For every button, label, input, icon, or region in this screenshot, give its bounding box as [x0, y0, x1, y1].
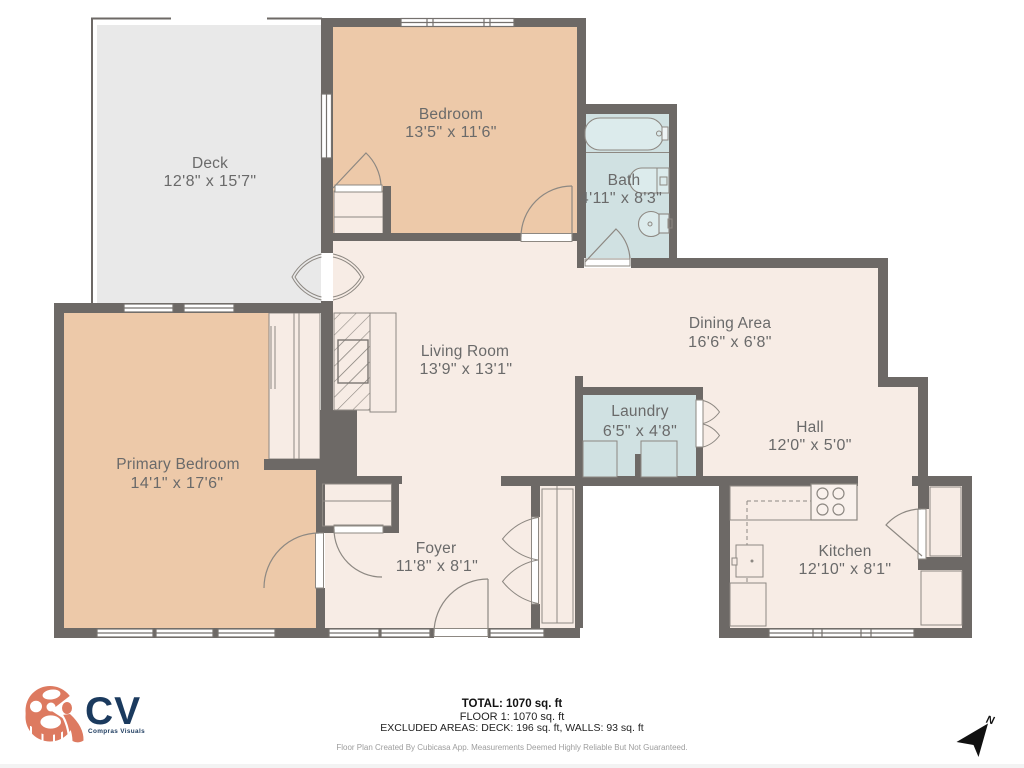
- svg-text:Living Room: Living Room: [421, 343, 509, 360]
- svg-text:Deck: Deck: [192, 155, 228, 172]
- svg-text:CV: CV: [85, 690, 141, 733]
- svg-text:Foyer: Foyer: [416, 540, 457, 557]
- svg-text:Dining Area: Dining Area: [689, 315, 772, 332]
- svg-text:12'10" x 8'1": 12'10" x 8'1": [799, 561, 892, 578]
- svg-text:4'11" x 8'3": 4'11" x 8'3": [580, 190, 662, 207]
- svg-text:Laundry: Laundry: [611, 403, 668, 420]
- svg-text:Floor Plan Created By Cubicasa: Floor Plan Created By Cubicasa App. Meas…: [336, 743, 687, 752]
- svg-text:11'8" x 8'1": 11'8" x 8'1": [396, 558, 478, 575]
- svg-text:Hall: Hall: [796, 419, 824, 436]
- svg-text:TOTAL: 1070 sq. ft: TOTAL: 1070 sq. ft: [462, 698, 563, 710]
- svg-text:Primary Bedroom: Primary Bedroom: [116, 456, 240, 473]
- svg-text:13'9" x 13'1": 13'9" x 13'1": [420, 361, 513, 378]
- svg-text:12'0" x 5'0": 12'0" x 5'0": [768, 437, 852, 454]
- svg-text:12'8" x 15'7": 12'8" x 15'7": [164, 173, 257, 190]
- svg-text:Kitchen: Kitchen: [818, 543, 871, 560]
- svg-text:Compras Visuals: Compras Visuals: [88, 728, 145, 735]
- svg-text:EXCLUDED AREAS: DECK: 196 sq.: EXCLUDED AREAS: DECK: 196 sq. ft, WALLS:…: [380, 722, 643, 734]
- svg-text:13'5" x 11'6": 13'5" x 11'6": [405, 124, 497, 141]
- svg-text:6'5" x 4'8": 6'5" x 4'8": [603, 423, 677, 440]
- svg-text:14'1" x 17'6": 14'1" x 17'6": [131, 475, 224, 492]
- svg-text:16'6" x 6'8": 16'6" x 6'8": [688, 334, 772, 351]
- svg-text:Bedroom: Bedroom: [419, 106, 483, 123]
- svg-text:Bath: Bath: [608, 172, 641, 189]
